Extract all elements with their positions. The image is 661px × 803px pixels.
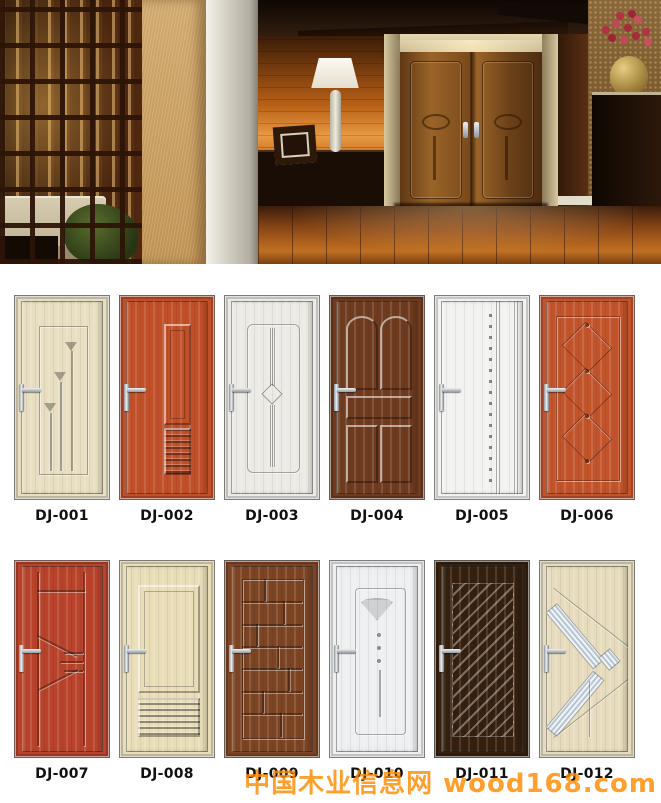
flower-vase [610,56,648,96]
door-handle [124,384,150,412]
door-image-dj-009 [224,560,320,758]
door-handle [334,645,360,673]
door-handle [544,645,570,673]
door-image-dj-004 [329,295,425,500]
door-code-label: DJ-005 [455,508,509,524]
door-handle [463,122,468,138]
door-leaf-right [482,61,534,199]
door-image-dj-001 [14,295,110,500]
door-card: DJ-001 [14,295,110,524]
door-image-dj-008 [119,560,215,758]
carved-groove [505,136,508,180]
door-image-dj-002 [119,295,215,500]
door-handle [229,645,255,673]
hallway [258,0,661,264]
door-handle [439,384,465,412]
door-card: DJ-011 [434,560,530,782]
door-image-dj-010 [329,560,425,758]
door-code-label: DJ-006 [560,508,614,524]
carved-groove [433,136,436,180]
door-card: DJ-005 [434,295,530,524]
door-card: DJ-007 [14,560,110,782]
door-card: DJ-002 [119,295,215,524]
picture-frame [273,125,318,166]
door-card: DJ-004 [329,295,425,524]
door-image-dj-007 [14,560,110,758]
door-code-label: DJ-001 [35,508,89,524]
door-handle [19,384,45,412]
door-card: DJ-012 [539,560,635,782]
door-handle [124,645,150,673]
wood-floor [258,206,661,264]
textured-column [142,0,206,264]
carved-scroll [422,114,450,130]
door-image-dj-012 [539,560,635,758]
door-code-label: DJ-003 [245,508,299,524]
door-image-dj-006 [539,295,635,500]
door-handle [544,384,570,412]
corner-wall [558,34,588,210]
door-image-dj-005 [434,295,530,500]
glass-insert [598,648,620,671]
table-lamp-base [330,90,341,152]
door-code-label: DJ-004 [350,508,404,524]
door-leaf-left [410,61,462,199]
double-entry-door [400,52,542,206]
door-handle [474,122,479,138]
door-card: DJ-006 [539,295,635,524]
hero-photo [0,0,661,264]
door-handle [19,645,45,673]
door-code-label: DJ-002 [140,508,194,524]
door-handle [334,384,360,412]
door-image-dj-011 [434,560,530,758]
door-card: DJ-003 [224,295,320,524]
site-watermark: 中国木业信息网 wood168.com [0,763,657,800]
door-handle [229,384,255,412]
grey-pillar [206,0,258,264]
door-row-2: DJ-007 DJ-008 [14,560,635,782]
door-row-1: DJ-001 DJ-002 DJ-003 [14,295,635,524]
flower-bouquet [602,26,610,34]
door-card: DJ-008 [119,560,215,782]
carved-scroll [494,114,522,130]
door-card: DJ-010 [329,560,425,782]
wood-lattice-screen [0,0,142,264]
door-card: DJ-009 [224,560,320,782]
door-image-dj-003 [224,295,320,500]
door-handle [439,645,465,673]
